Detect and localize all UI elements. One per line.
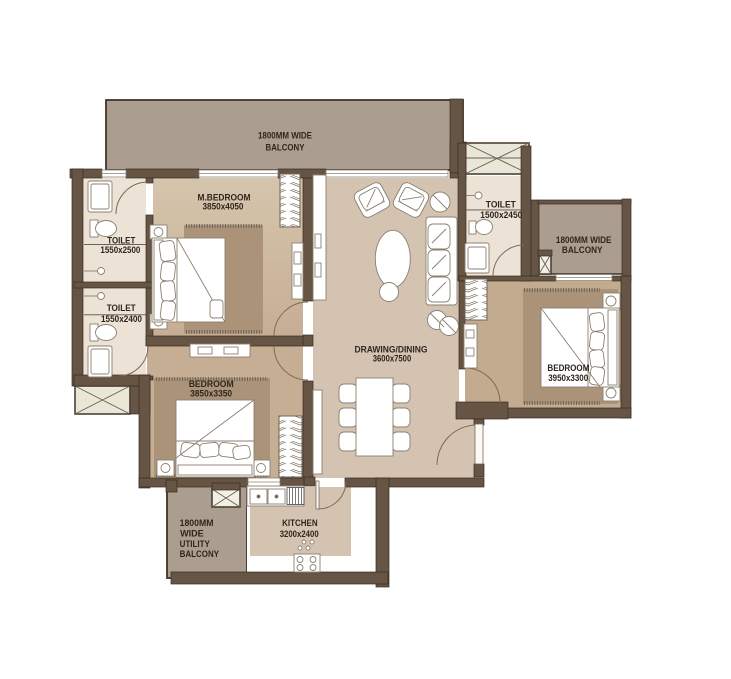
svg-text:3850x4050: 3850x4050 xyxy=(203,202,244,212)
svg-text:3850x3350: 3850x3350 xyxy=(190,389,232,399)
svg-text:1500x2450: 1500x2450 xyxy=(480,210,522,220)
svg-text:1800MM: 1800MM xyxy=(180,518,214,528)
svg-text:1800MM WIDE: 1800MM WIDE xyxy=(258,131,312,141)
svg-text:TOILET: TOILET xyxy=(107,303,136,313)
svg-text:TOILET: TOILET xyxy=(486,200,516,210)
svg-text:BALCONY: BALCONY xyxy=(562,245,603,255)
svg-text:3950x3300: 3950x3300 xyxy=(548,373,588,383)
svg-text:WIDE: WIDE xyxy=(180,528,204,538)
svg-text:1550x2500: 1550x2500 xyxy=(100,245,140,255)
svg-text:3600x7500: 3600x7500 xyxy=(373,354,412,364)
svg-text:BALCONY: BALCONY xyxy=(180,549,220,559)
svg-text:BEDROOM: BEDROOM xyxy=(547,363,589,373)
svg-text:1550x2400: 1550x2400 xyxy=(101,314,142,324)
svg-text:1800MM WIDE: 1800MM WIDE xyxy=(556,235,612,245)
svg-text:KITCHEN: KITCHEN xyxy=(282,518,318,528)
svg-text:BALCONY: BALCONY xyxy=(266,143,305,153)
svg-text:3200x2400: 3200x2400 xyxy=(280,529,319,539)
svg-text:BEDROOM: BEDROOM xyxy=(189,379,234,389)
svg-text:UTILITY: UTILITY xyxy=(180,539,210,549)
